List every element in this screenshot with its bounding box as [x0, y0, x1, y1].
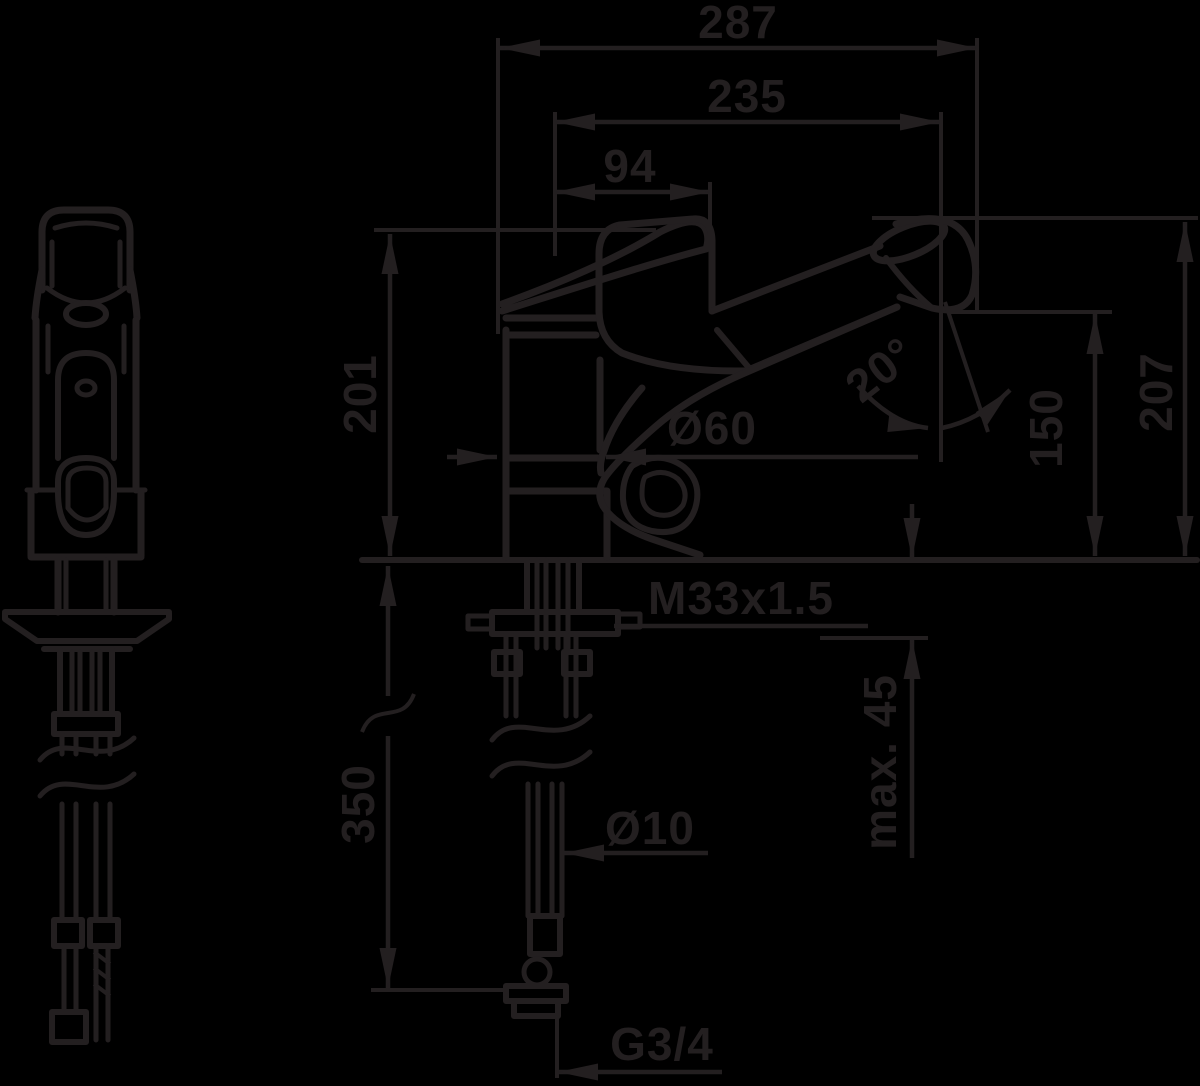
front-body	[36, 320, 136, 490]
front-hose-break	[40, 738, 134, 796]
dim-hose-length: 350	[332, 764, 384, 844]
side-body	[506, 318, 607, 557]
dim-spout-reach: 235	[707, 70, 787, 122]
spray-head-cap	[896, 219, 976, 310]
dim-handle-reach: 94	[603, 140, 656, 192]
front-lever-end	[66, 303, 106, 325]
dimension-labels: 287 235 94 201 350 150 207 max. 45 Ø60 M…	[332, 0, 1182, 1070]
front-hose-fitting	[52, 1012, 86, 1042]
dim-spout-height: 150	[1020, 388, 1072, 468]
front-escutcheon	[5, 612, 169, 649]
dim-mounting-thread: M33x1.5	[648, 572, 834, 624]
side-hose-fitting	[530, 916, 560, 954]
spout-collar	[599, 225, 746, 371]
dim-hose-diameter: Ø10	[605, 802, 695, 854]
dim-connection-thread: G3/4	[610, 1018, 714, 1070]
dim-swivel-angle: 20°	[836, 327, 925, 413]
dim-max-deck-thickness: max. 45	[854, 674, 906, 850]
dim-overall-width: 287	[698, 0, 778, 48]
side-mounting-nut	[492, 612, 618, 634]
dim-body-height: 201	[334, 354, 386, 434]
front-mounting-nut	[54, 714, 118, 734]
dim-break-350	[362, 694, 414, 732]
front-logo-dot	[77, 381, 95, 395]
faucet-dimension-drawing: 287 235 94 201 350 150 207 max. 45 Ø60 M…	[0, 0, 1200, 1086]
dim-overall-height: 207	[1130, 352, 1182, 432]
dim-base-diameter: Ø60	[667, 402, 757, 454]
front-view	[5, 210, 169, 1042]
side-hose-break	[492, 716, 590, 776]
